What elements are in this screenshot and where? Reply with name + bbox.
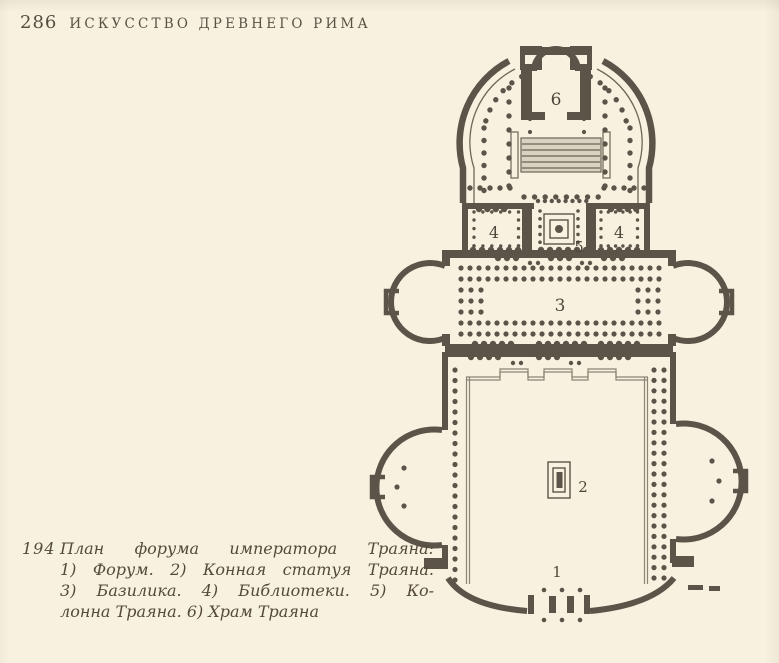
caption-line: лонна Траяна. 6) Храм Траяна — [60, 601, 434, 622]
plan-label-statue: 2 — [578, 478, 588, 496]
entrance-facade — [424, 556, 720, 614]
figure-number: 194 — [22, 539, 56, 558]
plan-label-library-left: 4 — [489, 223, 499, 242]
plan-label-column: 5 — [574, 238, 584, 256]
trajan-column — [544, 214, 574, 244]
caption-line: План форума императора Траяна: — [60, 538, 434, 559]
caption-line: 1) Форум. 2) Конная статуя Траяна. — [60, 559, 434, 580]
caption-line: 3) Базилика. 4) Библиотеки. 5) Ко- — [60, 580, 434, 601]
equestrian-statue — [548, 462, 570, 498]
temple-steps — [511, 132, 610, 178]
plan-label-forum: 1 — [552, 563, 562, 581]
plan-label-basilica: 3 — [555, 296, 566, 316]
plan-label-temple: 6 — [551, 90, 562, 110]
temple-precinct — [460, 61, 653, 203]
caption-text: План форума императора Траяна: 1) Форум.… — [60, 538, 434, 622]
plan-label-library-right: 4 — [614, 223, 624, 242]
